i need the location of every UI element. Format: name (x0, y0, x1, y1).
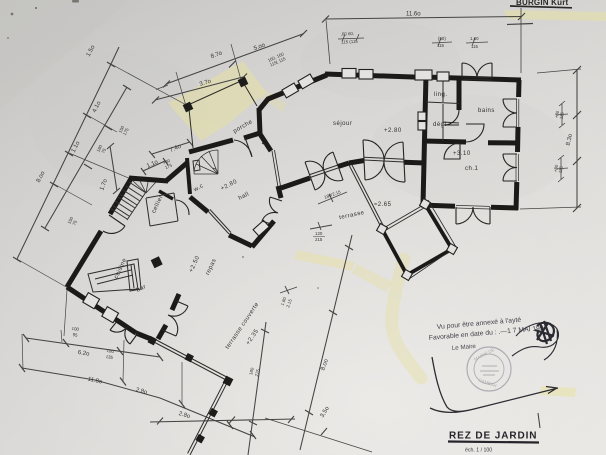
svg-text:1,80: 1,80 (470, 36, 479, 41)
svg-text:≈2.65: ≈2.65 (374, 202, 392, 208)
svg-text:+2.80: +2.80 (384, 128, 402, 134)
svg-text:,60 60,: ,60 60, (341, 31, 355, 37)
svg-text:115: 115 (437, 43, 445, 48)
svg-text:115 (115: 115 (115 (341, 39, 358, 45)
svg-text:ling.: ling. (434, 92, 448, 98)
svg-text:éch. 1 / 100: éch. 1 / 100 (465, 448, 492, 454)
svg-text:11.6o: 11.6o (406, 12, 421, 18)
svg-text:115: 115 (471, 44, 479, 49)
svg-text:215: 215 (315, 237, 323, 242)
svg-text:ch.1: ch.1 (465, 166, 479, 172)
svg-text:séjour: séjour (333, 121, 352, 127)
svg-text:dégt: dégt (433, 122, 447, 128)
svg-text:(60): (60) (438, 36, 446, 41)
svg-text:REZ DE JARDIN: REZ DE JARDIN (449, 431, 537, 442)
svg-text:bains: bains (478, 108, 495, 114)
svg-text:120: 120 (315, 231, 323, 236)
svg-text:+3.10: +3.10 (453, 151, 471, 157)
